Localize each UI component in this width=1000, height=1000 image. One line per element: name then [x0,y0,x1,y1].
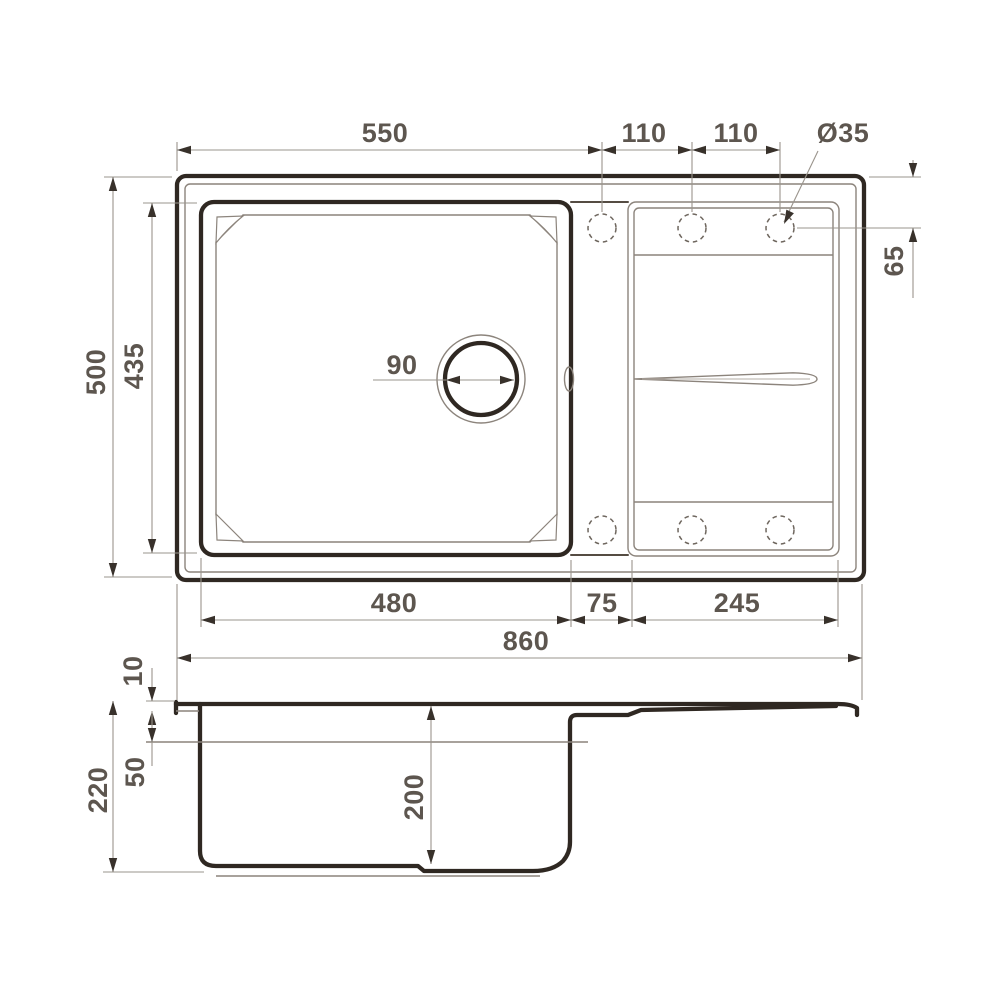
side-view [146,702,857,876]
faucet-hole-bottom-3 [766,516,794,544]
top-view [177,176,864,580]
dim-220-label: 220 [83,767,113,814]
dim-220: 220 [83,701,117,872]
dim-65: 65 [879,160,917,298]
dim-top-chain: 550 110 110 [177,118,780,154]
dim-110-right-label: 110 [713,118,758,148]
dim-480-label: 480 [371,588,418,618]
bowl-corner-facet-bl [216,514,243,541]
sink-outer-rim [177,176,864,580]
faucet-hole-top-3 [766,214,794,242]
bowl-corner-facet-tr [530,216,557,243]
drawing-svg: 550 110 110 Ø35 65 500 [0,0,1000,1000]
bowl-corner-facet-tl [216,216,243,243]
dim-550-label: 550 [362,118,409,148]
faucet-hole-bottom-2 [678,516,706,544]
side-bowl-profile [200,704,836,871]
dim-435: 435 [119,203,156,553]
dim-10: 10 [118,655,156,725]
dim-245-label: 245 [714,588,761,618]
faucet-hole-bottom-1 [588,516,616,544]
dim-bottom-chain: 480 75 245 [201,588,838,624]
extension-lines [103,142,921,872]
sink-inner-rim-line [185,184,856,572]
dim-435-label: 435 [119,343,149,390]
dim-860: 860 [177,626,862,662]
dim-50-label: 50 [120,756,150,787]
dim-75-label: 75 [586,588,617,618]
dim-500: 500 [81,177,117,577]
dim-10-label: 10 [118,655,148,686]
dim-860-label: 860 [503,626,550,656]
faucet-hole-top-1 [588,214,616,242]
dimensions: 550 110 110 Ø35 65 500 [81,118,917,872]
dim-200: 200 [399,706,435,864]
sink-technical-drawing: 550 110 110 Ø35 65 500 [0,0,1000,1000]
dim-500-label: 500 [81,349,111,396]
dim-200-label: 200 [399,774,429,821]
bowl-corner-facet-br [530,514,557,541]
faucet-hole-top-2 [678,214,706,242]
dim-90-label: 90 [386,350,417,380]
dim-o35-label: Ø35 [817,118,870,148]
dim-65-label: 65 [879,245,909,276]
dim-110-left-label: 110 [621,118,666,148]
